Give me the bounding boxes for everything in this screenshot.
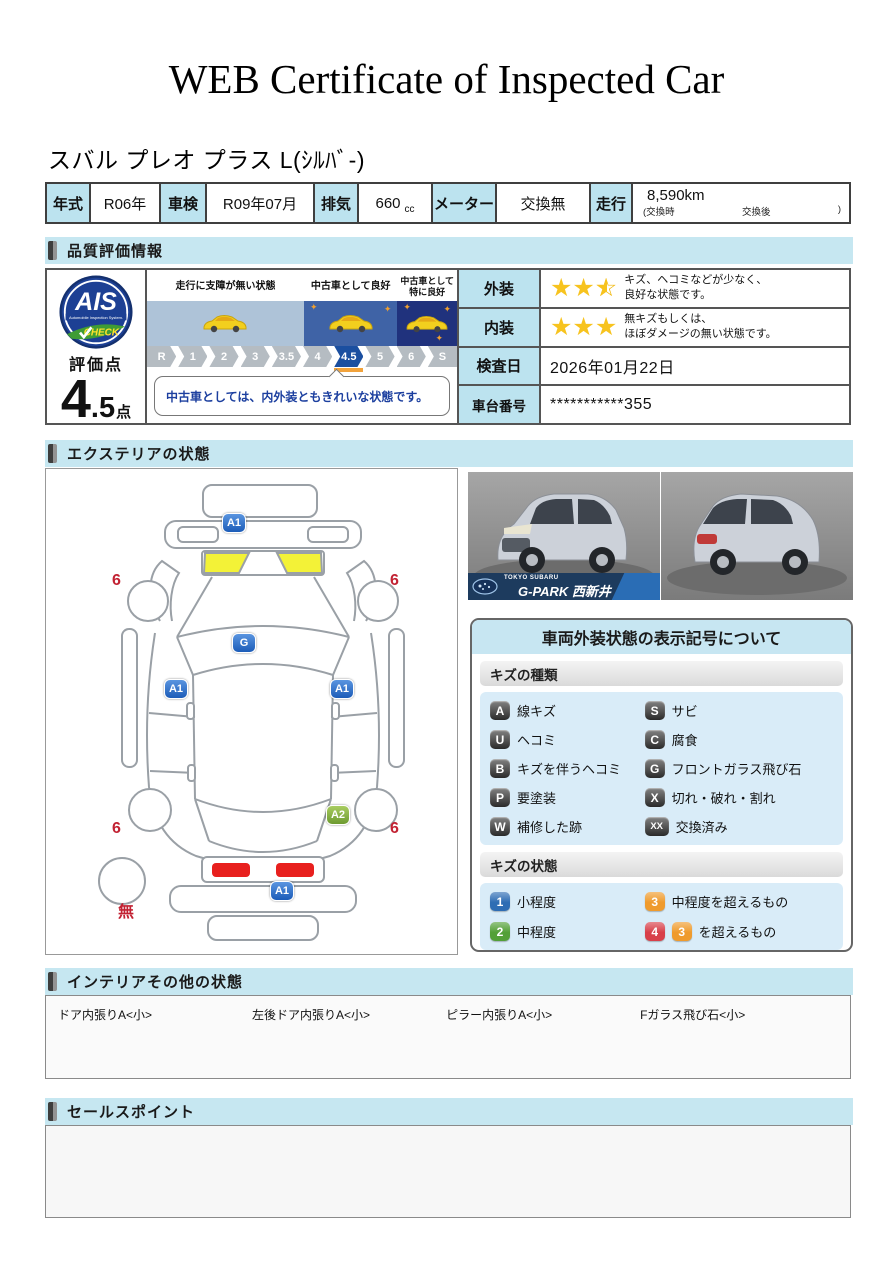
inspection-date-label: 検査日 xyxy=(459,348,541,385)
star-icon: ★ xyxy=(550,315,572,340)
damage-kind-item: Gフロントガラス飛び石 xyxy=(645,759,833,778)
legend-title: 車両外装状態の表示記号について xyxy=(472,620,851,654)
scale-step-3.5: 3.5 xyxy=(272,346,301,367)
damage-kind-list: A線キズSサビUヘコミC腐食Bキズを伴うヘコミGフロントガラス飛び石P要塗装X切… xyxy=(490,701,833,836)
section-accent-icon xyxy=(48,444,57,463)
damage-marker-g: G xyxy=(232,633,256,653)
star-icon: ★ xyxy=(572,315,594,340)
spec-inspection-label: 車検 xyxy=(159,184,205,222)
damage-state-item: 3中程度を超えるもの xyxy=(645,892,833,911)
spec-displacement-value: 660 cc xyxy=(357,184,431,222)
condition-panel-3-band: ✦ ✦ ✦ xyxy=(397,301,457,346)
sparkle-icon: ✦ xyxy=(384,305,392,314)
section-header-sales: セールスポイント xyxy=(45,1098,853,1125)
vehicle-photo-front: TOKYO SUBARU G-PARK 西新井 xyxy=(468,472,660,600)
condition-panel-3-label: 中古車として特に良好 xyxy=(397,270,457,301)
damage-code-badge: S xyxy=(645,701,665,720)
damage-legend: 車両外装状態の表示記号について キズの種類 A線キズSサビUヘコミC腐食Bキズを… xyxy=(470,618,853,952)
interior-star-rating: ★★★ xyxy=(550,315,617,340)
damage-state-label: 小程度 xyxy=(517,892,556,911)
score-value: 4 .5 点 xyxy=(61,377,131,423)
ais-logo-icon: AIS Automobile Inspection System. CHECK xyxy=(53,274,139,350)
damage-kind-item: W補修した跡 xyxy=(490,817,641,836)
damage-kind-label: ヘコミ xyxy=(517,730,556,749)
interior-rating-row: 内装 ★★★ 無キズもしくは、 ほぼダメージの無い状態です。 xyxy=(459,309,849,348)
damage-code-badge: G xyxy=(645,759,665,778)
score-main: 4 xyxy=(61,377,91,423)
damage-code-badge: A xyxy=(490,701,510,720)
mileage-note: (交換時 交換後 ) xyxy=(633,204,849,220)
sparkle-icon: ✦ xyxy=(310,303,318,312)
section-title-quality: 品質評価情報 xyxy=(67,240,163,261)
damage-marker-a2: A2 xyxy=(326,805,350,825)
subaru-logo-icon xyxy=(472,578,498,595)
page-title: WEB Certificate of Inspected Car xyxy=(0,55,893,103)
damage-code-badge: XX xyxy=(645,817,669,836)
damage-code-badge: P xyxy=(490,788,510,807)
damage-marker-a1: A1 xyxy=(270,881,294,901)
chassis-number-value: ***********355 xyxy=(541,386,849,423)
damage-kind-item: C腐食 xyxy=(645,730,833,749)
certificate-page: WEB Certificate of Inspected Car スバル プレオ… xyxy=(0,0,893,1263)
legend-kind-header: キズの種類 xyxy=(480,661,843,686)
section-accent-icon xyxy=(48,1102,57,1121)
quality-detail-column: 外装 ★★☆★ キズ、ヘコミなどが少なく、 良好な状態です。 内装 ★★★ 無キ… xyxy=(459,270,849,423)
tire-grade-label: 6 xyxy=(112,821,121,837)
condition-panel-2: 中古車として良好 ✦ ✦ xyxy=(304,270,397,346)
svg-text:AIS: AIS xyxy=(74,288,117,316)
section-title-exterior: エクステリアの状態 xyxy=(67,443,211,464)
damage-kind-label: 腐食 xyxy=(672,730,698,749)
interior-condition-item: Fガラス飛び石<小> xyxy=(640,1006,834,1023)
quality-score-column: AIS Automobile Inspection System. CHECK … xyxy=(47,270,147,423)
spec-inspection-value: R09年07月 xyxy=(205,184,313,222)
spec-mileage-label: 走行 xyxy=(589,184,631,222)
exterior-rating-label: 外装 xyxy=(459,270,541,307)
legend-state-header: キズの状態 xyxy=(480,852,843,877)
tire-grade-label: 6 xyxy=(390,573,399,589)
sparkle-icon: ✦ xyxy=(435,334,443,343)
inspection-date-row: 検査日 2026年01月22日 xyxy=(459,348,849,387)
scale-step-R: R xyxy=(147,346,176,367)
sales-point-box xyxy=(45,1125,851,1218)
damage-code-badge: W xyxy=(490,817,510,836)
tire-grade-label: 無 xyxy=(118,905,134,921)
damage-kind-label: キズを伴うヘコミ xyxy=(517,759,621,778)
spec-year-value: R06年 xyxy=(89,184,159,222)
spec-meter-label: メーター xyxy=(431,184,495,222)
exterior-diagram: A1GA1A1A2A16666無 xyxy=(45,468,458,955)
condition-panel-3: 中古車として特に良好 ✦ ✦ ✦ xyxy=(397,270,457,346)
damage-state-list: 1小程度3中程度を超えるもの2中程度43を超えるもの xyxy=(490,892,833,941)
car-icon xyxy=(328,314,374,333)
scale-step-4: 4 xyxy=(303,346,332,367)
displacement-unit: cc xyxy=(405,204,415,215)
car-icon xyxy=(405,315,449,333)
spec-meter-value: 交換無 xyxy=(495,184,589,222)
spec-table: 年式 R06年 車検 R09年07月 排気 660 cc メーター 交換無 走行… xyxy=(45,182,851,224)
interior-rating-note: 無キズもしくは、 ほぼダメージの無い状態です。 xyxy=(624,312,776,343)
condition-panel-2-label: 中古車として良好 xyxy=(304,270,397,301)
score-unit: 点 xyxy=(116,407,131,420)
damage-code-badge: X xyxy=(645,788,665,807)
interior-condition-item: ピラー内張りA<小> xyxy=(446,1006,640,1023)
vehicle-photos: TOKYO SUBARU G-PARK 西新井 xyxy=(468,472,853,600)
damage-state-item: 43を超えるもの xyxy=(645,922,833,941)
damage-kind-label: 線キズ xyxy=(517,701,556,720)
car-topview-diagram xyxy=(46,469,456,953)
damage-kind-item: A線キズ xyxy=(490,701,641,720)
section-accent-icon xyxy=(48,241,57,260)
interior-rating-label: 内装 xyxy=(459,309,541,346)
score-decimal: .5 xyxy=(91,396,115,421)
quality-box: AIS Automobile Inspection System. CHECK … xyxy=(45,268,851,425)
condition-panel-1-label: 走行に支障が無い状態 xyxy=(147,270,304,301)
rating-scale-bar: R1233.544.556S xyxy=(147,346,457,367)
damage-grade-badge: 2 xyxy=(490,922,510,941)
mileage-number: 8,590km xyxy=(633,184,705,204)
star-icon: ☆★ xyxy=(595,276,617,301)
scale-step-S: S xyxy=(428,346,457,367)
star-icon: ★ xyxy=(550,276,572,301)
mileage-note-mid: 交換後 xyxy=(742,204,771,218)
condition-panel-1: 走行に支障が無い状態 xyxy=(147,270,304,346)
damage-grade-badge: 3 xyxy=(672,922,692,941)
mileage-note-right: ) xyxy=(838,204,841,218)
rating-comment: 中古車としては、内外装ともきれいな状態です。 xyxy=(154,376,450,416)
tire-grade-label: 6 xyxy=(112,573,121,589)
section-header-interior: インテリアその他の状態 xyxy=(45,968,853,995)
damage-marker-a1: A1 xyxy=(330,679,354,699)
exterior-star-rating: ★★☆★ xyxy=(550,276,617,301)
spec-year-label: 年式 xyxy=(47,184,89,222)
damage-kind-item: Uヘコミ xyxy=(490,730,641,749)
damage-code-badge: C xyxy=(645,730,665,749)
damage-kind-label: フロントガラス飛び石 xyxy=(672,759,802,778)
banner-text-large: G-PARK 西新井 xyxy=(518,581,611,600)
section-accent-icon xyxy=(48,972,57,991)
vehicle-photo-rear xyxy=(661,472,853,600)
interior-condition-box: ドア内張りA<小>左後ドア内張りA<小>ピラー内張りA<小>Fガラス飛び石<小> xyxy=(45,995,851,1079)
sparkle-icon: ✦ xyxy=(443,305,451,314)
condition-panel-2-band: ✦ ✦ xyxy=(304,301,397,346)
damage-grade-badge: 3 xyxy=(645,892,665,911)
damage-kind-item: Sサビ xyxy=(645,701,833,720)
damage-state-item: 2中程度 xyxy=(490,922,641,941)
interior-condition-item: ドア内張りA<小> xyxy=(58,1006,252,1023)
chassis-number-label: 車台番号 xyxy=(459,386,541,423)
damage-kind-label: サビ xyxy=(672,701,698,720)
tire-grade-label: 6 xyxy=(390,821,399,837)
scale-step-4.5: 4.5 xyxy=(334,346,363,367)
damage-state-label: 中程度を超えるもの xyxy=(672,892,789,911)
chassis-number-row: 車台番号 ***********355 xyxy=(459,386,849,423)
damage-kind-item: XX交換済み xyxy=(645,817,833,836)
legend-body: キズの種類 A線キズSサビUヘコミC腐食Bキズを伴うヘコミGフロントガラス飛び石… xyxy=(472,654,851,950)
inspection-date-value: 2026年01月22日 xyxy=(541,348,849,385)
scale-step-6: 6 xyxy=(397,346,426,367)
condition-panels: 走行に支障が無い状態 中古車として良好 ✦ ✦ xyxy=(147,270,457,346)
damage-grade-badge: 4 xyxy=(645,922,665,941)
spec-mileage-value: 8,590km (交換時 交換後 ) xyxy=(631,184,849,222)
displacement-number: 660 xyxy=(375,195,400,212)
damage-marker-a1: A1 xyxy=(164,679,188,699)
dealer-banner: TOKYO SUBARU G-PARK 西新井 xyxy=(468,573,660,600)
star-icon: ★ xyxy=(595,315,617,340)
condition-panel-1-band xyxy=(147,301,304,346)
scale-step-3: 3 xyxy=(241,346,270,367)
mileage-note-left: (交換時 xyxy=(643,204,675,218)
damage-kind-label: 交換済み xyxy=(676,817,728,836)
damage-kind-label: 要塗装 xyxy=(517,788,556,807)
scale-step-5: 5 xyxy=(365,346,394,367)
svg-text:Automobile Inspection System.: Automobile Inspection System. xyxy=(69,315,123,320)
damage-kind-item: X切れ・破れ・割れ xyxy=(645,788,833,807)
vehicle-photo-rear-image xyxy=(661,472,853,600)
section-title-interior: インテリアその他の状態 xyxy=(67,971,243,992)
damage-marker-a1: A1 xyxy=(222,513,246,533)
section-title-sales: セールスポイント xyxy=(67,1101,195,1122)
sparkle-icon: ✦ xyxy=(403,303,411,312)
star-icon: ★ xyxy=(572,276,594,301)
exterior-rating-note: キズ、ヘコミなどが少なく、 良好な状態です。 xyxy=(624,273,767,304)
scale-step-1: 1 xyxy=(178,346,207,367)
spec-displacement-label: 排気 xyxy=(313,184,357,222)
section-header-quality: 品質評価情報 xyxy=(45,237,853,264)
banner-stripe xyxy=(612,573,660,600)
vehicle-name: スバル プレオ プラス L(ｼﾙﾊﾞ-) xyxy=(48,141,365,175)
damage-code-badge: B xyxy=(490,759,510,778)
damage-kind-item: Bキズを伴うヘコミ xyxy=(490,759,641,778)
damage-code-badge: U xyxy=(490,730,510,749)
exterior-rating-row: 外装 ★★☆★ キズ、ヘコミなどが少なく、 良好な状態です。 xyxy=(459,270,849,309)
interior-condition-item: 左後ドア内張りA<小> xyxy=(252,1006,446,1023)
damage-kind-item: P要塗装 xyxy=(490,788,641,807)
damage-state-label: を超えるもの xyxy=(699,922,777,941)
damage-kind-label: 切れ・破れ・割れ xyxy=(672,788,776,807)
damage-state-item: 1小程度 xyxy=(490,892,641,911)
damage-kind-label: 補修した跡 xyxy=(517,817,582,836)
section-header-exterior: エクステリアの状態 xyxy=(45,440,853,467)
car-icon xyxy=(202,314,248,333)
damage-grade-badge: 1 xyxy=(490,892,510,911)
quality-scale-column: 走行に支障が無い状態 中古車として良好 ✦ ✦ xyxy=(147,270,459,423)
damage-state-label: 中程度 xyxy=(517,922,556,941)
scale-step-2: 2 xyxy=(209,346,238,367)
